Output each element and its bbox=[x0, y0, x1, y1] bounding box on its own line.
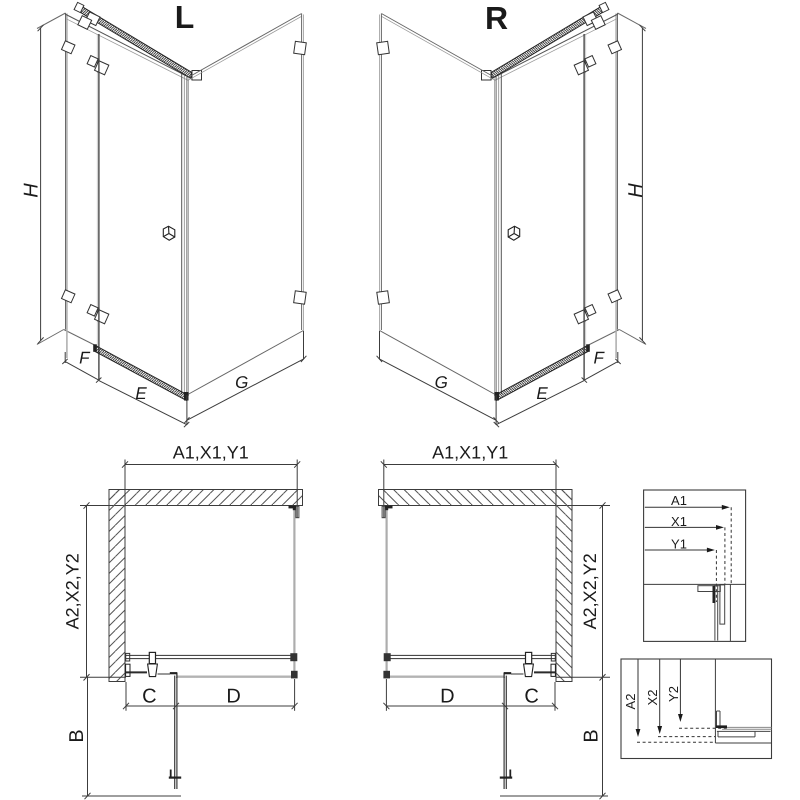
svg-text:B: B bbox=[66, 729, 88, 742]
svg-text:A2,X2,Y2: A2,X2,Y2 bbox=[62, 553, 82, 629]
svg-text:C: C bbox=[142, 685, 156, 707]
svg-text:G: G bbox=[435, 373, 448, 392]
svg-text:F: F bbox=[79, 348, 91, 367]
svg-text:E: E bbox=[536, 384, 548, 403]
svg-text:Y1: Y1 bbox=[671, 537, 687, 552]
svg-text:A1,X1,Y1: A1,X1,Y1 bbox=[432, 443, 508, 463]
svg-text:D: D bbox=[226, 685, 240, 707]
svg-text:C: C bbox=[524, 685, 538, 707]
svg-text:X2: X2 bbox=[645, 690, 660, 706]
svg-text:F: F bbox=[594, 348, 606, 367]
svg-text:X1: X1 bbox=[671, 514, 687, 529]
svg-text:A2,X2,Y2: A2,X2,Y2 bbox=[580, 553, 600, 629]
svg-text:A1,X1,Y1: A1,X1,Y1 bbox=[173, 443, 249, 463]
svg-text:H: H bbox=[21, 183, 43, 198]
svg-text:D: D bbox=[440, 685, 454, 707]
svg-text:R: R bbox=[485, 0, 508, 36]
svg-text:A1: A1 bbox=[671, 493, 687, 508]
svg-text:L: L bbox=[175, 0, 195, 35]
svg-text:B: B bbox=[581, 729, 603, 742]
svg-text:A2: A2 bbox=[623, 694, 638, 710]
svg-text:Y2: Y2 bbox=[666, 686, 681, 702]
svg-text:H: H bbox=[625, 183, 647, 198]
svg-text:E: E bbox=[135, 384, 147, 403]
svg-text:G: G bbox=[235, 373, 248, 392]
